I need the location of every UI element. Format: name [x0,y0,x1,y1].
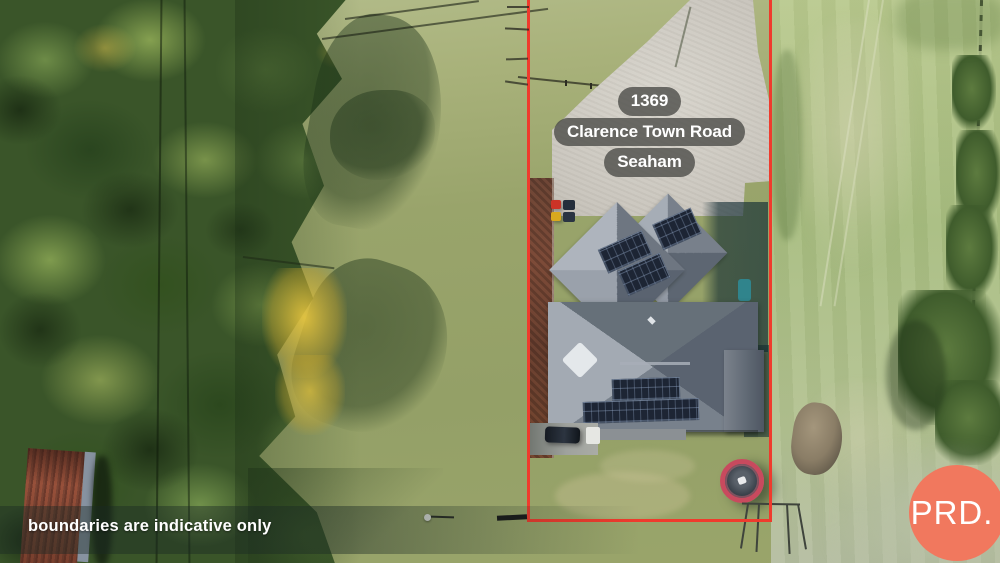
aerial-property-photo: 1369 Clarence Town Road Seaham boundarie… [0,0,1000,563]
parked-car [545,426,581,443]
bin-dark-2 [563,212,575,222]
bin-dark [563,200,575,210]
lawn-dry-patch-2 [600,450,695,482]
boundary-fence-tick [507,6,529,8]
roof-ridge-line [620,362,690,365]
top-right-dark-patch [895,0,1000,50]
bin-yellow-lid [551,212,561,221]
address-number: 1369 [618,87,681,116]
clothesline-leg-2 [755,504,760,552]
bin-red-lid [551,200,561,209]
clothesline-leg-1 [740,504,749,549]
fence-shrub-3 [946,205,998,300]
solar-panel-array-5 [583,398,700,424]
brand-logo-circle: PRD. [909,465,1000,561]
boundary-fence-tick-2 [505,27,529,30]
house-rear-wall [594,429,686,440]
boundary-fence-tick-3 [506,58,528,61]
shrub-shadow [886,320,946,430]
disclaimer-text: boundaries are indicative only [28,517,272,536]
garage-roof [724,350,764,432]
solar-panel-array-4 [612,377,681,401]
address-street: Clarence Town Road [554,118,745,147]
power-line [345,0,479,19]
fence-shrub [952,55,996,130]
brand-logo-text: PRD. [911,494,994,532]
white-patio-item [586,427,600,444]
boundary-fence-tick-4 [505,80,528,85]
boundary-edge-scrub [772,50,802,240]
pool-equipment [738,279,751,301]
boundary-line-left [527,0,530,522]
wattle-tree-2 [275,355,345,435]
address-suburb: Seaham [604,148,695,177]
pasture-worn-patch [785,20,920,270]
boundary-line-right [769,0,772,522]
address-label: 1369 Clarence Town Road Seaham [527,86,772,178]
